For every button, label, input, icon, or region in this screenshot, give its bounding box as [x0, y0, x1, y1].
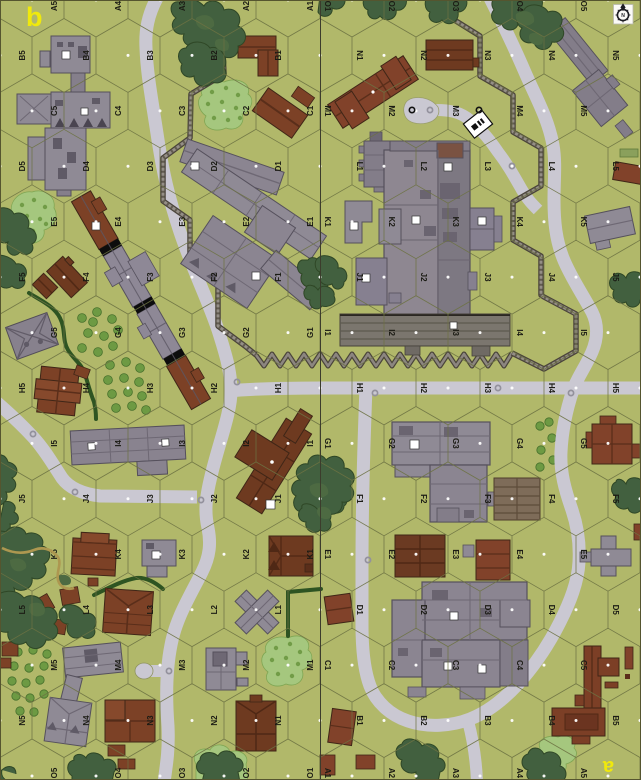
- svg-text:O3: O3: [178, 767, 187, 778]
- svg-text:H5: H5: [18, 382, 27, 393]
- svg-text:J1: J1: [355, 273, 364, 282]
- svg-text:N4: N4: [82, 715, 91, 726]
- svg-text:O1: O1: [323, 1, 332, 12]
- svg-text:M2: M2: [242, 659, 251, 671]
- svg-text:L5: L5: [611, 162, 620, 172]
- svg-text:F1: F1: [274, 272, 283, 282]
- svg-text:M4: M4: [515, 105, 524, 117]
- svg-text:F4: F4: [82, 272, 91, 282]
- svg-text:H3: H3: [483, 383, 492, 394]
- svg-text:C4: C4: [515, 660, 524, 671]
- svg-text:G1: G1: [323, 438, 332, 449]
- svg-text:O5: O5: [50, 767, 59, 778]
- svg-text:N5: N5: [18, 715, 27, 726]
- svg-text:J4: J4: [547, 273, 556, 282]
- svg-text:E4: E4: [515, 549, 524, 559]
- svg-text:F5: F5: [611, 494, 620, 504]
- svg-text:A3: A3: [451, 768, 460, 779]
- svg-text:E1: E1: [323, 549, 332, 559]
- svg-text:C1: C1: [306, 105, 315, 116]
- svg-text:I2: I2: [242, 440, 251, 447]
- svg-text:A2: A2: [387, 768, 396, 779]
- svg-text:L3: L3: [483, 162, 492, 172]
- svg-text:N2: N2: [210, 715, 219, 726]
- svg-text:B3: B3: [146, 50, 155, 61]
- svg-text:L1: L1: [274, 604, 283, 614]
- svg-text:J5: J5: [18, 494, 27, 503]
- svg-text:H2: H2: [419, 383, 428, 394]
- svg-text:K4: K4: [114, 549, 123, 560]
- svg-text:F2: F2: [419, 494, 428, 504]
- svg-text:G2: G2: [242, 327, 251, 338]
- svg-text:C2: C2: [242, 105, 251, 116]
- svg-text:H4: H4: [547, 383, 556, 394]
- svg-text:M3: M3: [178, 659, 187, 671]
- svg-text:A5: A5: [50, 0, 59, 11]
- svg-text:H2: H2: [210, 382, 219, 393]
- svg-text:A4: A4: [114, 0, 123, 11]
- svg-text:B5: B5: [18, 50, 27, 61]
- svg-text:M2: M2: [387, 105, 396, 117]
- svg-text:G3: G3: [178, 327, 187, 338]
- svg-text:B2: B2: [419, 715, 428, 726]
- svg-text:I5: I5: [50, 440, 59, 447]
- svg-text:K2: K2: [242, 549, 251, 560]
- svg-text:C4: C4: [114, 105, 123, 116]
- svg-text:M4: M4: [114, 659, 123, 671]
- svg-text:G1: G1: [306, 327, 315, 338]
- svg-text:A5: A5: [579, 768, 588, 779]
- svg-text:J2: J2: [419, 273, 428, 282]
- svg-text:B2: B2: [210, 50, 219, 61]
- svg-text:H3: H3: [146, 382, 155, 393]
- svg-text:K5: K5: [579, 217, 588, 228]
- svg-text:L2: L2: [210, 604, 219, 614]
- svg-text:C2: C2: [387, 660, 396, 671]
- svg-text:O4: O4: [114, 767, 123, 778]
- svg-text:L4: L4: [82, 604, 91, 614]
- svg-text:D4: D4: [82, 161, 91, 172]
- svg-text:I4: I4: [515, 329, 524, 336]
- svg-text:N1: N1: [274, 715, 283, 726]
- svg-text:I5: I5: [579, 329, 588, 336]
- svg-text:I4: I4: [114, 440, 123, 447]
- svg-text:M5: M5: [50, 659, 59, 671]
- svg-text:I3: I3: [451, 329, 460, 336]
- svg-text:N3: N3: [483, 50, 492, 61]
- svg-text:F3: F3: [146, 272, 155, 282]
- svg-text:J2: J2: [210, 494, 219, 503]
- svg-text:O5: O5: [579, 1, 588, 12]
- svg-text:D3: D3: [146, 161, 155, 172]
- svg-text:M5: M5: [579, 105, 588, 117]
- svg-text:L3: L3: [146, 604, 155, 614]
- svg-text:H4: H4: [82, 382, 91, 393]
- svg-text:E4: E4: [114, 216, 123, 226]
- svg-text:A1: A1: [306, 0, 315, 11]
- svg-text:M3: M3: [451, 105, 460, 117]
- svg-text:b: b: [26, 2, 43, 32]
- svg-text:H1: H1: [274, 382, 283, 393]
- svg-text:O1: O1: [306, 767, 315, 778]
- svg-text:F2: F2: [210, 272, 219, 282]
- svg-text:O3: O3: [451, 1, 460, 12]
- svg-text:H5: H5: [611, 383, 620, 394]
- svg-text:D5: D5: [611, 605, 620, 616]
- svg-text:G4: G4: [515, 438, 524, 449]
- svg-text:D2: D2: [419, 605, 428, 616]
- svg-text:L5: L5: [18, 604, 27, 614]
- svg-text:J1: J1: [274, 494, 283, 503]
- svg-text:F4: F4: [547, 494, 556, 504]
- svg-text:D4: D4: [547, 605, 556, 616]
- svg-text:N3: N3: [146, 715, 155, 726]
- svg-text:J5: J5: [611, 273, 620, 282]
- svg-text:E2: E2: [242, 216, 251, 226]
- svg-text:I1: I1: [323, 329, 332, 336]
- svg-text:J4: J4: [82, 494, 91, 503]
- svg-text:B5: B5: [611, 715, 620, 726]
- svg-text:B4: B4: [82, 50, 91, 61]
- svg-text:N1: N1: [355, 50, 364, 61]
- svg-text:F1: F1: [355, 494, 364, 504]
- svg-text:B1: B1: [355, 715, 364, 726]
- svg-text:E1: E1: [306, 216, 315, 226]
- svg-text:K2: K2: [387, 217, 396, 228]
- svg-text:G5: G5: [50, 327, 59, 338]
- svg-text:G3: G3: [451, 438, 460, 449]
- svg-text:N2: N2: [419, 50, 428, 61]
- svg-text:G2: G2: [387, 438, 396, 449]
- svg-text:K1: K1: [306, 549, 315, 560]
- svg-text:M1: M1: [323, 105, 332, 117]
- svg-text:D1: D1: [355, 605, 364, 616]
- svg-text:B3: B3: [483, 715, 492, 726]
- svg-text:K3: K3: [451, 217, 460, 228]
- svg-text:K1: K1: [323, 217, 332, 228]
- svg-text:B1: B1: [274, 50, 283, 61]
- svg-text:C3: C3: [178, 105, 187, 116]
- svg-text:B4: B4: [547, 715, 556, 726]
- svg-text:C1: C1: [323, 660, 332, 671]
- svg-text:L2: L2: [419, 162, 428, 172]
- svg-text:N4: N4: [547, 50, 556, 61]
- svg-text:C5: C5: [50, 105, 59, 116]
- svg-text:N5: N5: [611, 50, 620, 61]
- svg-text:J3: J3: [483, 273, 492, 282]
- svg-text:I1: I1: [306, 440, 315, 447]
- svg-text:J3: J3: [146, 494, 155, 503]
- svg-text:D3: D3: [483, 605, 492, 616]
- svg-text:a: a: [602, 756, 614, 778]
- svg-text:G4: G4: [114, 327, 123, 338]
- svg-text:D5: D5: [18, 161, 27, 172]
- svg-text:L1: L1: [355, 162, 364, 172]
- svg-text:L4: L4: [547, 162, 556, 172]
- svg-text:I2: I2: [387, 329, 396, 336]
- svg-text:O2: O2: [387, 1, 396, 12]
- svg-text:G5: G5: [579, 438, 588, 449]
- svg-text:E2: E2: [387, 549, 396, 559]
- svg-text:C3: C3: [451, 660, 460, 671]
- svg-text:A2: A2: [242, 0, 251, 11]
- svg-text:F5: F5: [18, 272, 27, 282]
- svg-text:E3: E3: [451, 549, 460, 559]
- svg-text:K3: K3: [178, 549, 187, 560]
- svg-text:D1: D1: [274, 161, 283, 172]
- svg-text:A4: A4: [515, 768, 524, 779]
- svg-text:H1: H1: [355, 383, 364, 394]
- svg-text:E5: E5: [50, 216, 59, 226]
- svg-text:E5: E5: [579, 549, 588, 559]
- svg-text:D2: D2: [210, 161, 219, 172]
- svg-text:C5: C5: [579, 660, 588, 671]
- svg-text:A3: A3: [178, 0, 187, 11]
- svg-text:A1: A1: [323, 768, 332, 779]
- svg-text:I3: I3: [178, 440, 187, 447]
- svg-text:F3: F3: [483, 494, 492, 504]
- svg-text:N: N: [621, 13, 625, 19]
- svg-text:O4: O4: [515, 1, 524, 12]
- svg-text:M1: M1: [306, 659, 315, 671]
- svg-text:K4: K4: [515, 217, 524, 228]
- svg-text:O2: O2: [242, 767, 251, 778]
- svg-text:E3: E3: [178, 216, 187, 226]
